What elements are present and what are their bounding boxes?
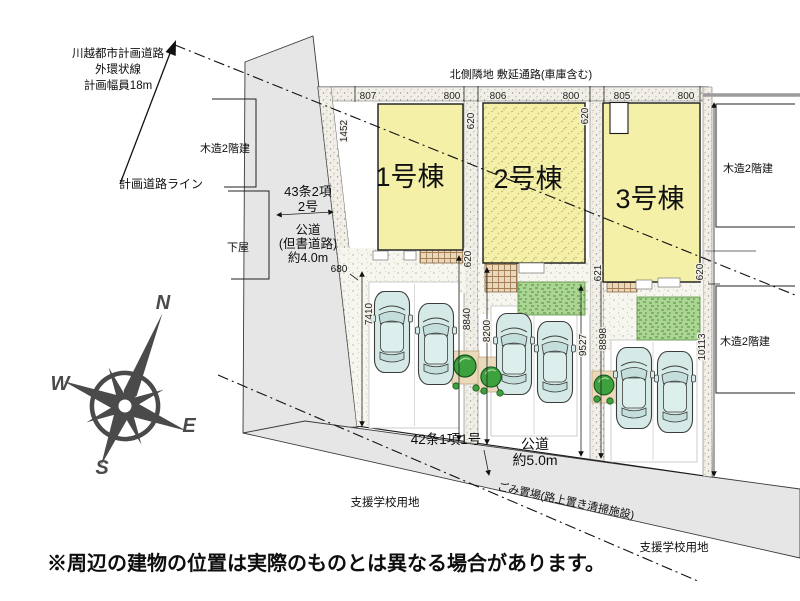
west-road-type: 公道 <box>295 223 321 237</box>
west-road-width: 約4.0m <box>288 250 328 265</box>
tree-icon <box>454 355 476 377</box>
dim-d12-top: 620 <box>466 112 477 129</box>
car-icon <box>655 352 696 433</box>
west-road-law1: 43条2項 <box>284 184 332 199</box>
dim-west-top: 1452 <box>339 119 350 142</box>
dim-east-mid: 620 <box>695 263 706 280</box>
dim-d23-top: 620 <box>580 107 591 124</box>
neighbor-left-label: 木造2階建 <box>200 141 250 155</box>
compass-s: S <box>95 457 109 479</box>
building-2-label: 2号棟 <box>493 164 562 194</box>
dim-north-4: 805 <box>614 91 631 102</box>
planned-road-note-line3: 計画幅員18m <box>84 78 152 92</box>
compass-e: E <box>182 415 196 437</box>
dim-west-jog: 680 <box>331 264 348 275</box>
neighbor-right-bottom-label: 木造2階建 <box>720 334 770 348</box>
dim-d23-mid: 621 <box>593 264 604 281</box>
dim-north-5: 800 <box>678 91 695 102</box>
building-1-label: 1号棟 <box>375 162 444 192</box>
planned-road-line-label: 計画道路ライン <box>119 176 203 191</box>
school-site-left-label: 支援学校用地 <box>351 495 420 509</box>
dim-east-depth: 10113 <box>697 333 708 361</box>
south-road-law: 42条1項1号 <box>411 431 482 447</box>
west-road-note: (但書道路) <box>279 236 337 251</box>
dim-north-1: 800 <box>444 91 461 102</box>
disclaimer: ※周辺の建物の位置は実際のものとは異なる場合があります。 <box>47 551 605 575</box>
car-icon <box>614 348 655 429</box>
compass-w: W <box>51 373 72 395</box>
south-road-width: 約5.0m <box>512 452 557 468</box>
north-note: 北側隣地 敷延通路(車庫含む) <box>450 67 592 81</box>
car-icon <box>416 304 457 385</box>
dim-d12-east: 8200 <box>482 319 493 342</box>
car-icon <box>372 292 413 373</box>
tree-icon <box>594 375 614 395</box>
neighbor-right-top-label: 木造2階建 <box>723 161 773 175</box>
building-3-notch <box>610 103 628 134</box>
planned-road-note-line1: 川越都市計画道路 <box>72 46 164 60</box>
car-icon <box>535 322 576 403</box>
dim-north-2: 806 <box>490 91 507 102</box>
west-road-law2: 2号 <box>298 199 318 214</box>
tree-icon <box>481 367 501 387</box>
building-3-label: 3号棟 <box>615 184 684 214</box>
neighbor-left-sub-label: 下屋 <box>227 241 249 254</box>
site-plan: 川越都市計画道路 外環状線 計画幅員18m 計画道路ライン 北側隣地 敷延通路(… <box>0 0 800 601</box>
south-road-type: 公道 <box>521 436 549 452</box>
dim-d12-west: 8840 <box>462 307 473 330</box>
compass-n: N <box>156 292 171 314</box>
garden-lot3 <box>637 297 700 340</box>
dim-d12-mid: 620 <box>463 250 474 267</box>
dim-d23-east: 8898 <box>598 327 609 350</box>
school-site-right-label: 支援学校用地 <box>640 540 709 554</box>
dim-north-3: 800 <box>563 91 580 102</box>
dim-lot1-depth: 7410 <box>364 302 375 325</box>
dim-north-0: 807 <box>360 91 377 102</box>
garden-lot2 <box>518 282 585 315</box>
planned-road-note-line2: 外環状線 <box>95 62 141 76</box>
site-plan-drawing: 川越都市計画道路 外環状線 計画幅員18m 計画道路ライン 北側隣地 敷延通路(… <box>0 0 800 601</box>
dim-d23-west: 9527 <box>578 333 589 356</box>
